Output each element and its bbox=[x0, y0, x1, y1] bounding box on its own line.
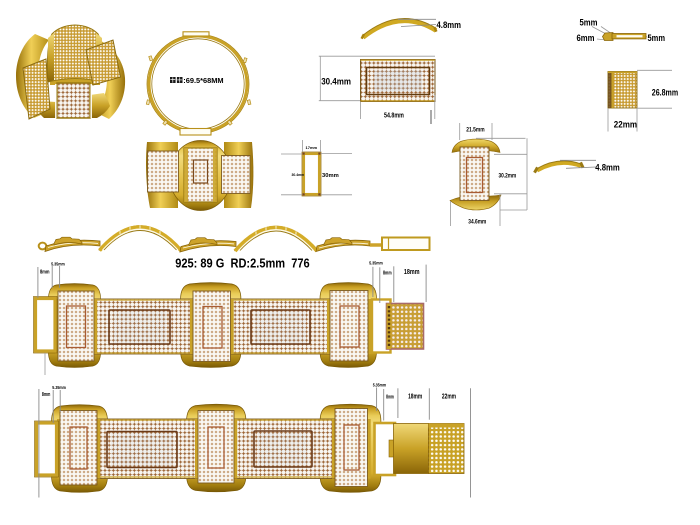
svg-text:4.8mm: 4.8mm bbox=[437, 20, 462, 31]
svg-text:30mm: 30mm bbox=[322, 173, 339, 179]
svg-text:8mm: 8mm bbox=[42, 392, 50, 398]
svg-text:5.35mm: 5.35mm bbox=[52, 385, 66, 390]
svg-text:5.35mm: 5.35mm bbox=[369, 260, 383, 265]
svg-text:4.8mm: 4.8mm bbox=[595, 162, 620, 172]
svg-text:26.8mm: 26.8mm bbox=[652, 88, 678, 99]
svg-text:21.5mm: 21.5mm bbox=[466, 126, 485, 133]
svg-text:5mm: 5mm bbox=[580, 18, 598, 28]
svg-text:8mm: 8mm bbox=[386, 394, 394, 400]
svg-text:18mm: 18mm bbox=[408, 392, 422, 401]
svg-text:30.2mm: 30.2mm bbox=[499, 172, 517, 179]
svg-text:5.35mm: 5.35mm bbox=[373, 383, 387, 388]
svg-text:54.8mm: 54.8mm bbox=[384, 111, 404, 120]
svg-text:8mm: 8mm bbox=[40, 270, 50, 276]
svg-text:5mm: 5mm bbox=[648, 33, 666, 43]
svg-text:34.6mm: 34.6mm bbox=[468, 219, 486, 226]
svg-text:8mm: 8mm bbox=[383, 271, 392, 277]
svg-text:18mm: 18mm bbox=[404, 267, 420, 276]
svg-text:22mm: 22mm bbox=[442, 392, 456, 401]
svg-text:17mm: 17mm bbox=[306, 145, 318, 150]
svg-text:22mm: 22mm bbox=[614, 119, 637, 129]
svg-text:30.4mm: 30.4mm bbox=[321, 77, 351, 87]
svg-text:6mm: 6mm bbox=[577, 33, 595, 43]
svg-text::69.5*68MM: :69.5*68MM bbox=[183, 76, 223, 85]
svg-text:5.35mm: 5.35mm bbox=[51, 261, 65, 266]
svg-text:925: 89 G RD:2.5mm 776: 925: 89 G RD:2.5mm 776 bbox=[175, 256, 310, 271]
svg-text:30.4mm: 30.4mm bbox=[292, 173, 305, 177]
